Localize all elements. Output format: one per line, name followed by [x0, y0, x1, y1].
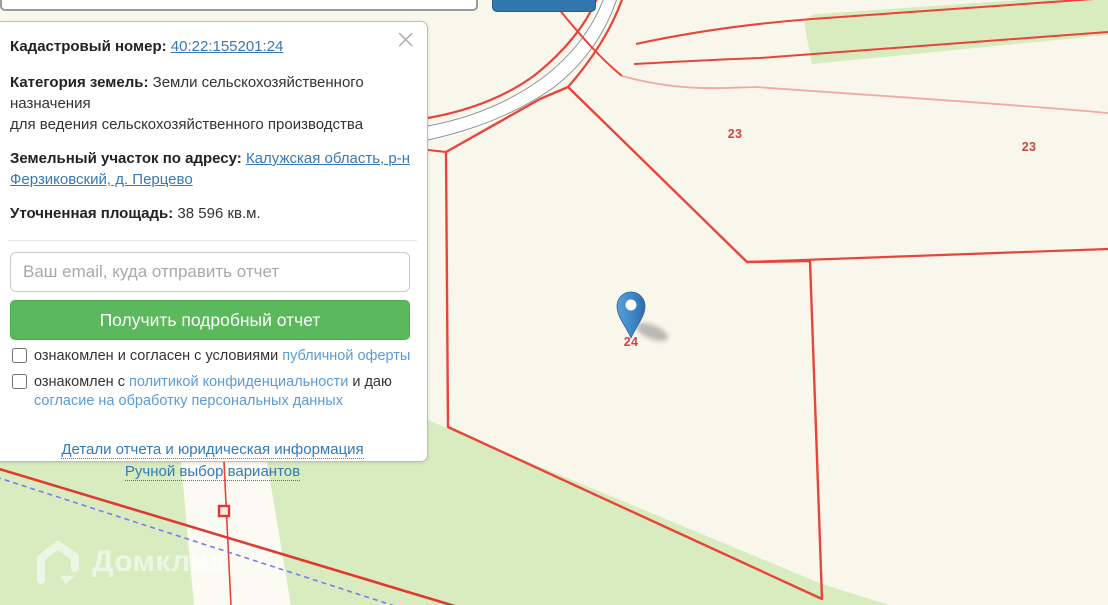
- category-note: для ведения сельскохозяйственного произв…: [10, 114, 415, 135]
- consent-privacy-text: ознакомлен с: [34, 374, 129, 390]
- consent-offer-checkbox[interactable]: [12, 348, 27, 363]
- area-row: Уточненная площадь: 38 596 кв.м.: [10, 203, 415, 224]
- divider: [8, 240, 417, 241]
- area-label: Уточненная площадь:: [10, 205, 173, 222]
- get-report-button[interactable]: Получить подробный отчет: [10, 300, 410, 340]
- parcel-label-23: 23: [728, 127, 743, 141]
- search-input[interactable]: [0, 0, 478, 11]
- consent-privacy-checkbox[interactable]: [12, 374, 27, 389]
- cadastral-number-link[interactable]: 40:22:155201:24: [171, 38, 284, 55]
- consent-privacy-text2: и даю: [348, 374, 392, 390]
- parcel-info-panel: × Кадастровый номер: 40:22:155201:24 Кат…: [0, 21, 428, 462]
- privacy-policy-link[interactable]: политикой конфиденциальности: [129, 374, 348, 390]
- consent-privacy-row: ознакомлен с политикой конфиденциальност…: [10, 373, 415, 411]
- consent-offer-row: ознакомлен и согласен с условиями публич…: [10, 347, 415, 366]
- area-value: 38 596 кв.м.: [177, 205, 260, 222]
- manual-select-link[interactable]: Ручной выбор вариантов: [125, 463, 300, 481]
- category-label: Категория земель:: [10, 74, 148, 91]
- pin-hole: [626, 300, 637, 311]
- watermark-text: Домклик: [92, 545, 225, 579]
- parcel-label-23: 23: [1022, 140, 1037, 154]
- cadastral-label: Кадастровый номер:: [10, 38, 167, 55]
- address-label: Земельный участок по адресу:: [10, 150, 242, 167]
- close-icon[interactable]: ×: [394, 26, 417, 53]
- domklik-watermark: Домклик: [34, 540, 225, 584]
- parcel-label-24: 24: [624, 335, 639, 349]
- address-row: Земельный участок по адресу: Калужская о…: [10, 148, 415, 190]
- cadastral-number-row: Кадастровый номер: 40:22:155201:24: [10, 36, 415, 57]
- email-field[interactable]: [10, 252, 410, 292]
- personal-data-link[interactable]: согласие на обработку персональных данны…: [34, 393, 343, 409]
- consent-offer-text: ознакомлен и согласен с условиями: [34, 348, 282, 364]
- panel-bottom-links: Детали отчета и юридическая информация Р…: [10, 439, 415, 483]
- domklik-logo-icon: [34, 540, 80, 584]
- category-row: Категория земель: Земли сельскохозяйстве…: [10, 72, 415, 135]
- report-details-link[interactable]: Детали отчета и юридическая информация: [61, 441, 363, 459]
- search-button[interactable]: [492, 0, 596, 12]
- boundary-point-marker: [219, 506, 229, 516]
- public-offer-link[interactable]: публичной оферты: [282, 348, 410, 364]
